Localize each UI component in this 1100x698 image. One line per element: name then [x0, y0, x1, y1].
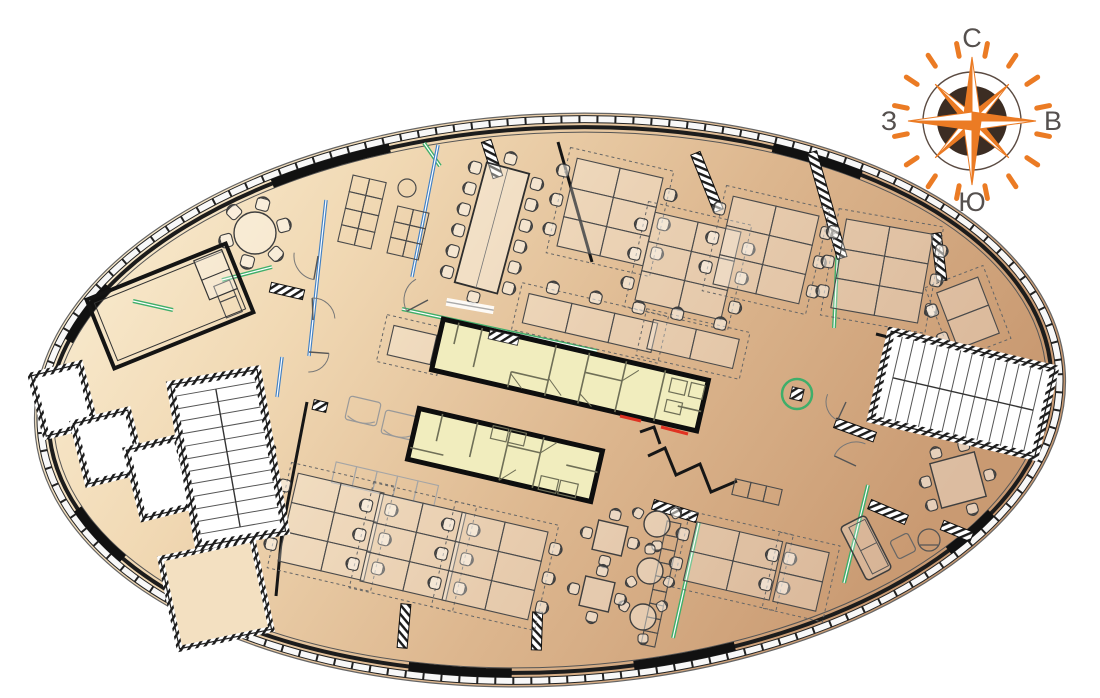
floor-plan-page: С В Ю З	[0, 0, 1100, 698]
floor-plan-canvas: С В Ю З	[0, 0, 1100, 698]
chair	[645, 544, 655, 555]
chair	[638, 634, 648, 645]
generated-plan	[20, 87, 1081, 698]
compass-label-west: З	[881, 106, 897, 136]
floor-tip	[160, 539, 271, 649]
compass-label-north: С	[962, 23, 982, 53]
compass-star-icon	[895, 44, 1050, 199]
compass-label-east: В	[1044, 106, 1062, 136]
compass-label-south: Ю	[958, 187, 985, 217]
column-icon	[790, 387, 804, 401]
